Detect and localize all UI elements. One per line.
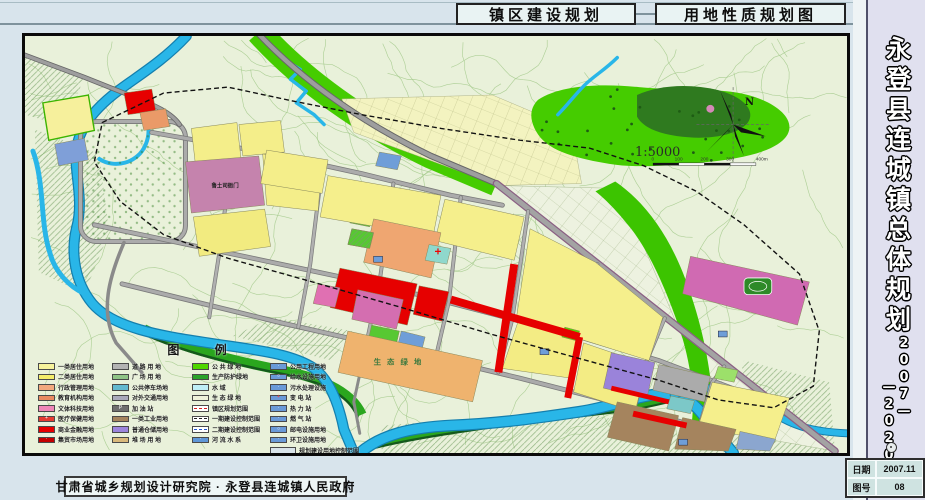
page-title-left: 镇区建设规划 — [456, 3, 636, 25]
legend-item: 道 路 用 地 — [112, 361, 192, 372]
legend-item: 行政管理用地 — [38, 382, 112, 393]
scale-tick-label: 300 — [726, 156, 734, 162]
date-label: 日期 — [847, 460, 876, 478]
credit-text: 甘肃省城乡规划设计研究院 · 永登县连城镇人民政府 — [56, 478, 356, 495]
legend-label: 行政管理用地 — [58, 383, 94, 392]
legend-swatch: · — [270, 437, 287, 444]
legend-swatch — [192, 405, 209, 412]
legend-title: 图 例 — [38, 341, 356, 358]
legend-swatch: + — [270, 395, 287, 402]
legend-column: 一类居住用地二类居住用地行政管理用地教育机构用地文体科技用地+医疗保健用地商业金… — [38, 361, 112, 456]
legend-label: 对外交通用地 — [132, 393, 168, 402]
legend-label: 环卫设施用地 — [290, 435, 326, 444]
legend-label: 给水设施用地 — [290, 372, 326, 381]
legend-label: 公 共 绿 地 — [212, 362, 241, 371]
page-title-right: 用地性质规划图 — [655, 3, 846, 25]
legend-label: 商业金融用地 — [58, 425, 94, 434]
legend-swatch — [270, 447, 296, 454]
legend-swatch — [38, 374, 55, 381]
legend-swatch — [38, 426, 55, 433]
legend-swatch — [38, 395, 55, 402]
legend-item: 二类居住用地 — [38, 372, 112, 383]
legend-swatch — [112, 426, 129, 433]
legend-item: 对外交通用地 — [112, 393, 192, 404]
legend-item: 规划建设用地控制范围 — [270, 445, 356, 456]
legend-swatch — [38, 363, 55, 370]
legend-swatch — [38, 405, 55, 412]
survey-marker-icon — [886, 442, 897, 453]
legend-item: 广 场 用 地 — [112, 372, 192, 383]
scale-tick-label: 100 — [675, 156, 683, 162]
legend-swatch — [112, 437, 129, 444]
legend-swatch — [112, 363, 129, 370]
legend-swatch — [192, 374, 209, 381]
legend-label: 道 路 用 地 — [132, 362, 161, 371]
legend-swatch: · — [192, 437, 209, 444]
legend-item: 文体科技用地 — [38, 403, 112, 414]
info-table: 日期 2007.11 图号 08 — [845, 458, 925, 498]
legend-label: 镇区规划范围 — [212, 404, 248, 413]
legend-label: 公共停车场地 — [132, 383, 168, 392]
legend-swatch: ○ — [270, 426, 287, 433]
legend-swatch — [112, 416, 129, 423]
page-title-left-label: 镇区建设规划 — [489, 4, 603, 25]
legend-item: ·集贸市场用地 — [38, 435, 112, 446]
legend-item: 一期建设控制范围 — [192, 414, 270, 425]
legend-label: 一类居住用地 — [58, 362, 94, 371]
legend-label: 燃 气 站 — [290, 414, 311, 423]
legend-label: 公用工程用地 — [290, 362, 326, 371]
legend-label: 医疗保健用地 — [58, 414, 94, 423]
legend-swatch — [192, 426, 209, 433]
legend-label: 河 流 水 系 — [212, 435, 241, 444]
legend-label: 水 域 — [212, 383, 226, 392]
legend-swatch: · — [270, 405, 287, 412]
legend-swatch: + — [38, 416, 55, 423]
legend-column: ·公用工程用地○给水设施用地·污水处理设施+变 电 站·热 力 站·燃 气 站○… — [270, 361, 356, 456]
legend-item: ·污水处理设施 — [270, 382, 356, 393]
legend-column: 道 路 用 地广 场 用 地公共停车场地对外交通用地P加 油 站一类工业用地普通… — [112, 361, 192, 456]
legend-label: 二类居住用地 — [58, 372, 94, 381]
legend-swatch — [112, 395, 129, 402]
legend-item: P加 油 站 — [112, 403, 192, 414]
legend-label: 教育机构用地 — [58, 393, 94, 402]
legend-item: 水 域 — [192, 382, 270, 393]
legend-swatch — [112, 374, 129, 381]
legend-item: 堆 场 用 地 — [112, 435, 192, 446]
legend-swatch — [112, 384, 129, 391]
legend-item: ·热 力 站 — [270, 403, 356, 414]
legend-swatch: · — [270, 416, 287, 423]
legend-label: 变 电 站 — [290, 393, 311, 402]
legend-label: 热 力 站 — [290, 404, 311, 413]
legend-item: +变 电 站 — [270, 393, 356, 404]
legend-item: +医疗保健用地 — [38, 414, 112, 425]
legend-label: 邮电设施用地 — [290, 425, 326, 434]
scale-text: 1:5000 — [635, 145, 680, 160]
legend-item: 一类居住用地 — [38, 361, 112, 372]
legend-item: ·环卫设施用地 — [270, 435, 356, 446]
legend-label: 文体科技用地 — [58, 404, 94, 413]
legend-swatch — [192, 384, 209, 391]
sheet-number-value: 08 — [876, 478, 923, 496]
legend-item: 生产防护绿地 — [192, 372, 270, 383]
legend-swatch: ○ — [270, 374, 287, 381]
legend-swatch — [192, 416, 209, 423]
legend-swatch — [192, 395, 209, 402]
legend-label: 规划建设用地控制范围 — [299, 446, 359, 455]
credit-bar: 甘肃省城乡规划设计研究院 · 永登县连城镇人民政府 — [64, 476, 347, 497]
legend-swatch: · — [38, 437, 55, 444]
date-value: 2007.11 — [876, 460, 923, 478]
legend-item: ·河 流 水 系 — [192, 435, 270, 446]
sheet-margin — [853, 0, 866, 500]
legend-item: 一类工业用地 — [112, 414, 192, 425]
legend: 图 例 一类居住用地二类居住用地行政管理用地教育机构用地文体科技用地+医疗保健用… — [38, 341, 356, 456]
legend-item: 公 共 绿 地 — [192, 361, 270, 372]
legend-item: ○给水设施用地 — [270, 372, 356, 383]
sheet-number-label: 图号 — [847, 478, 876, 496]
legend-item: 镇区规划范围 — [192, 403, 270, 414]
legend-label: 广 场 用 地 — [132, 372, 161, 381]
legend-label: 堆 场 用 地 — [132, 435, 161, 444]
legend-label: 加 油 站 — [132, 404, 153, 413]
legend-label: 一类工业用地 — [132, 414, 168, 423]
map-panel: N 1:5000 0100200300400m 鲁土司衙门 生 态 绿 地 图 … — [22, 33, 850, 456]
page-title-right-label: 用地性质规划图 — [684, 4, 817, 25]
plan-period-start: 2007— — [897, 336, 912, 421]
title-sidebar: 永登县连城镇总体规划 2007— —2020 — [866, 0, 925, 500]
legend-swatch: · — [270, 384, 287, 391]
legend-swatch — [38, 384, 55, 391]
scale-tick-label: 0 — [652, 156, 655, 162]
legend-label: 集贸市场用地 — [58, 435, 94, 444]
legend-item: 生 态 绿 地 — [192, 393, 270, 404]
legend-item: 二期建设控制范围 — [192, 424, 270, 435]
eco-green-label: 生 态 绿 地 — [374, 358, 424, 367]
legend-swatch — [192, 363, 209, 370]
heritage-site-label: 鲁土司衙门 — [211, 181, 239, 189]
north-label: N — [745, 97, 754, 108]
legend-item: 普通仓储用地 — [112, 424, 192, 435]
legend-item: ○邮电设施用地 — [270, 424, 356, 435]
legend-label: 污水处理设施 — [290, 383, 326, 392]
scale-tick-label: 400m — [756, 156, 768, 162]
legend-label: 生产防护绿地 — [212, 372, 248, 381]
legend-item: ·燃 气 站 — [270, 414, 356, 425]
plan-title-vertical: 永登县连城镇总体规划 — [879, 36, 915, 336]
legend-item: 公共停车场地 — [112, 382, 192, 393]
legend-column: 公 共 绿 地生产防护绿地水 域生 态 绿 地镇区规划范围一期建设控制范围二期建… — [192, 361, 270, 456]
scale-tick-label: 200 — [700, 156, 708, 162]
legend-label: 生 态 绿 地 — [212, 393, 241, 402]
legend-label: 普通仓储用地 — [132, 425, 168, 434]
legend-item: 教育机构用地 — [38, 393, 112, 404]
legend-item: ·公用工程用地 — [270, 361, 356, 372]
legend-label: 二期建设控制范围 — [212, 425, 260, 434]
legend-swatch: P — [112, 405, 129, 412]
legend-item: 商业金融用地 — [38, 424, 112, 435]
legend-label: 一期建设控制范围 — [212, 414, 260, 423]
legend-swatch: · — [270, 363, 287, 370]
